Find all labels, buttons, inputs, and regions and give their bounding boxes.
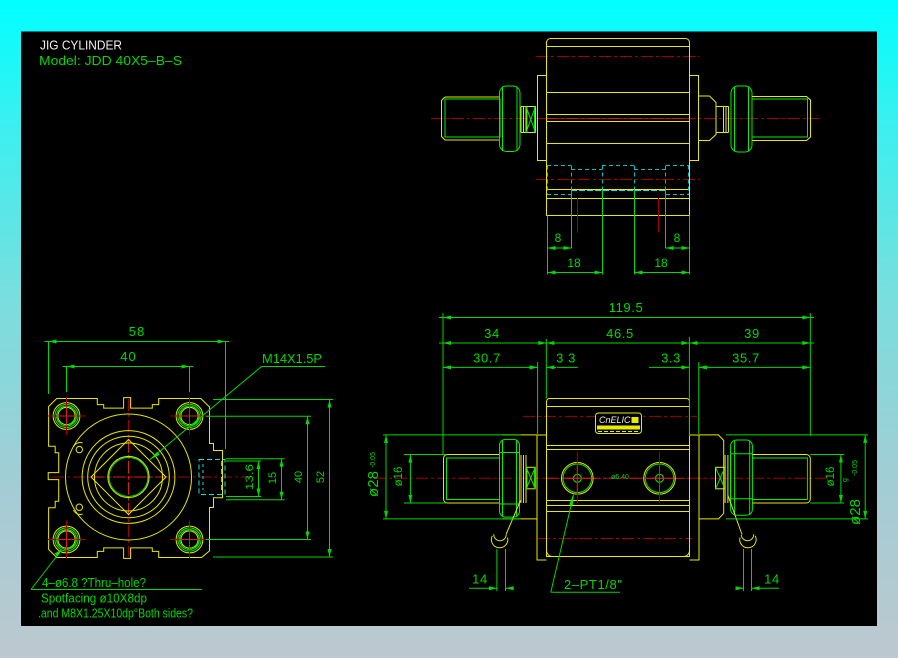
svg-text:2–PT1/8": 2–PT1/8" [564, 577, 623, 592]
svg-text:58: 58 [129, 324, 145, 339]
svg-text:14: 14 [472, 572, 488, 587]
svg-text:46.5: 46.5 [606, 326, 634, 341]
svg-text:52: 52 [315, 471, 327, 483]
svg-text:3.3: 3.3 [661, 351, 681, 366]
svg-text:-0.05: -0.05 [370, 452, 377, 468]
svg-text:CnELIC: CnELIC [599, 415, 631, 425]
svg-text:14: 14 [764, 572, 780, 587]
svg-text:-0.05: -0.05 [852, 460, 859, 476]
svg-text:ø6 40: ø6 40 [611, 474, 629, 481]
svg-text:8: 8 [555, 231, 562, 245]
svg-text:JIG CYLINDER: JIG CYLINDER [40, 38, 122, 53]
svg-text:Model: JDD 40X5–B–S: Model: JDD 40X5–B–S [39, 53, 182, 68]
svg-text:.and M8X1.25X10dp°Both sides?: .and M8X1.25X10dp°Both sides? [38, 607, 193, 621]
svg-text:34: 34 [484, 326, 500, 341]
svg-text:Spotfacing ø10X8dp: Spotfacing ø10X8dp [41, 592, 147, 606]
svg-text:ø28: ø28 [847, 499, 864, 525]
svg-text:39: 39 [744, 326, 760, 341]
svg-text:3 3: 3 3 [556, 351, 576, 366]
svg-text:15: 15 [267, 472, 279, 484]
svg-text:ø16: ø16 [393, 467, 405, 487]
svg-text:40: 40 [293, 471, 305, 483]
svg-text:30.7: 30.7 [473, 351, 501, 366]
svg-text:18: 18 [654, 256, 668, 270]
svg-text:g: g [842, 478, 849, 482]
svg-text:ø16: ø16 [825, 467, 837, 487]
svg-text:119.5: 119.5 [609, 300, 644, 315]
svg-text:13.6: 13.6 [244, 464, 256, 490]
svg-text:18: 18 [567, 256, 581, 270]
svg-text:ø28: ø28 [365, 471, 382, 497]
svg-text:4–ø6.8 ?Thru–hole?: 4–ø6.8 ?Thru–hole? [42, 576, 146, 590]
svg-text:M14X1.5P: M14X1.5P [262, 351, 322, 366]
svg-text:40: 40 [120, 349, 136, 364]
svg-text:35.7: 35.7 [732, 351, 760, 366]
svg-text:8: 8 [674, 231, 681, 245]
